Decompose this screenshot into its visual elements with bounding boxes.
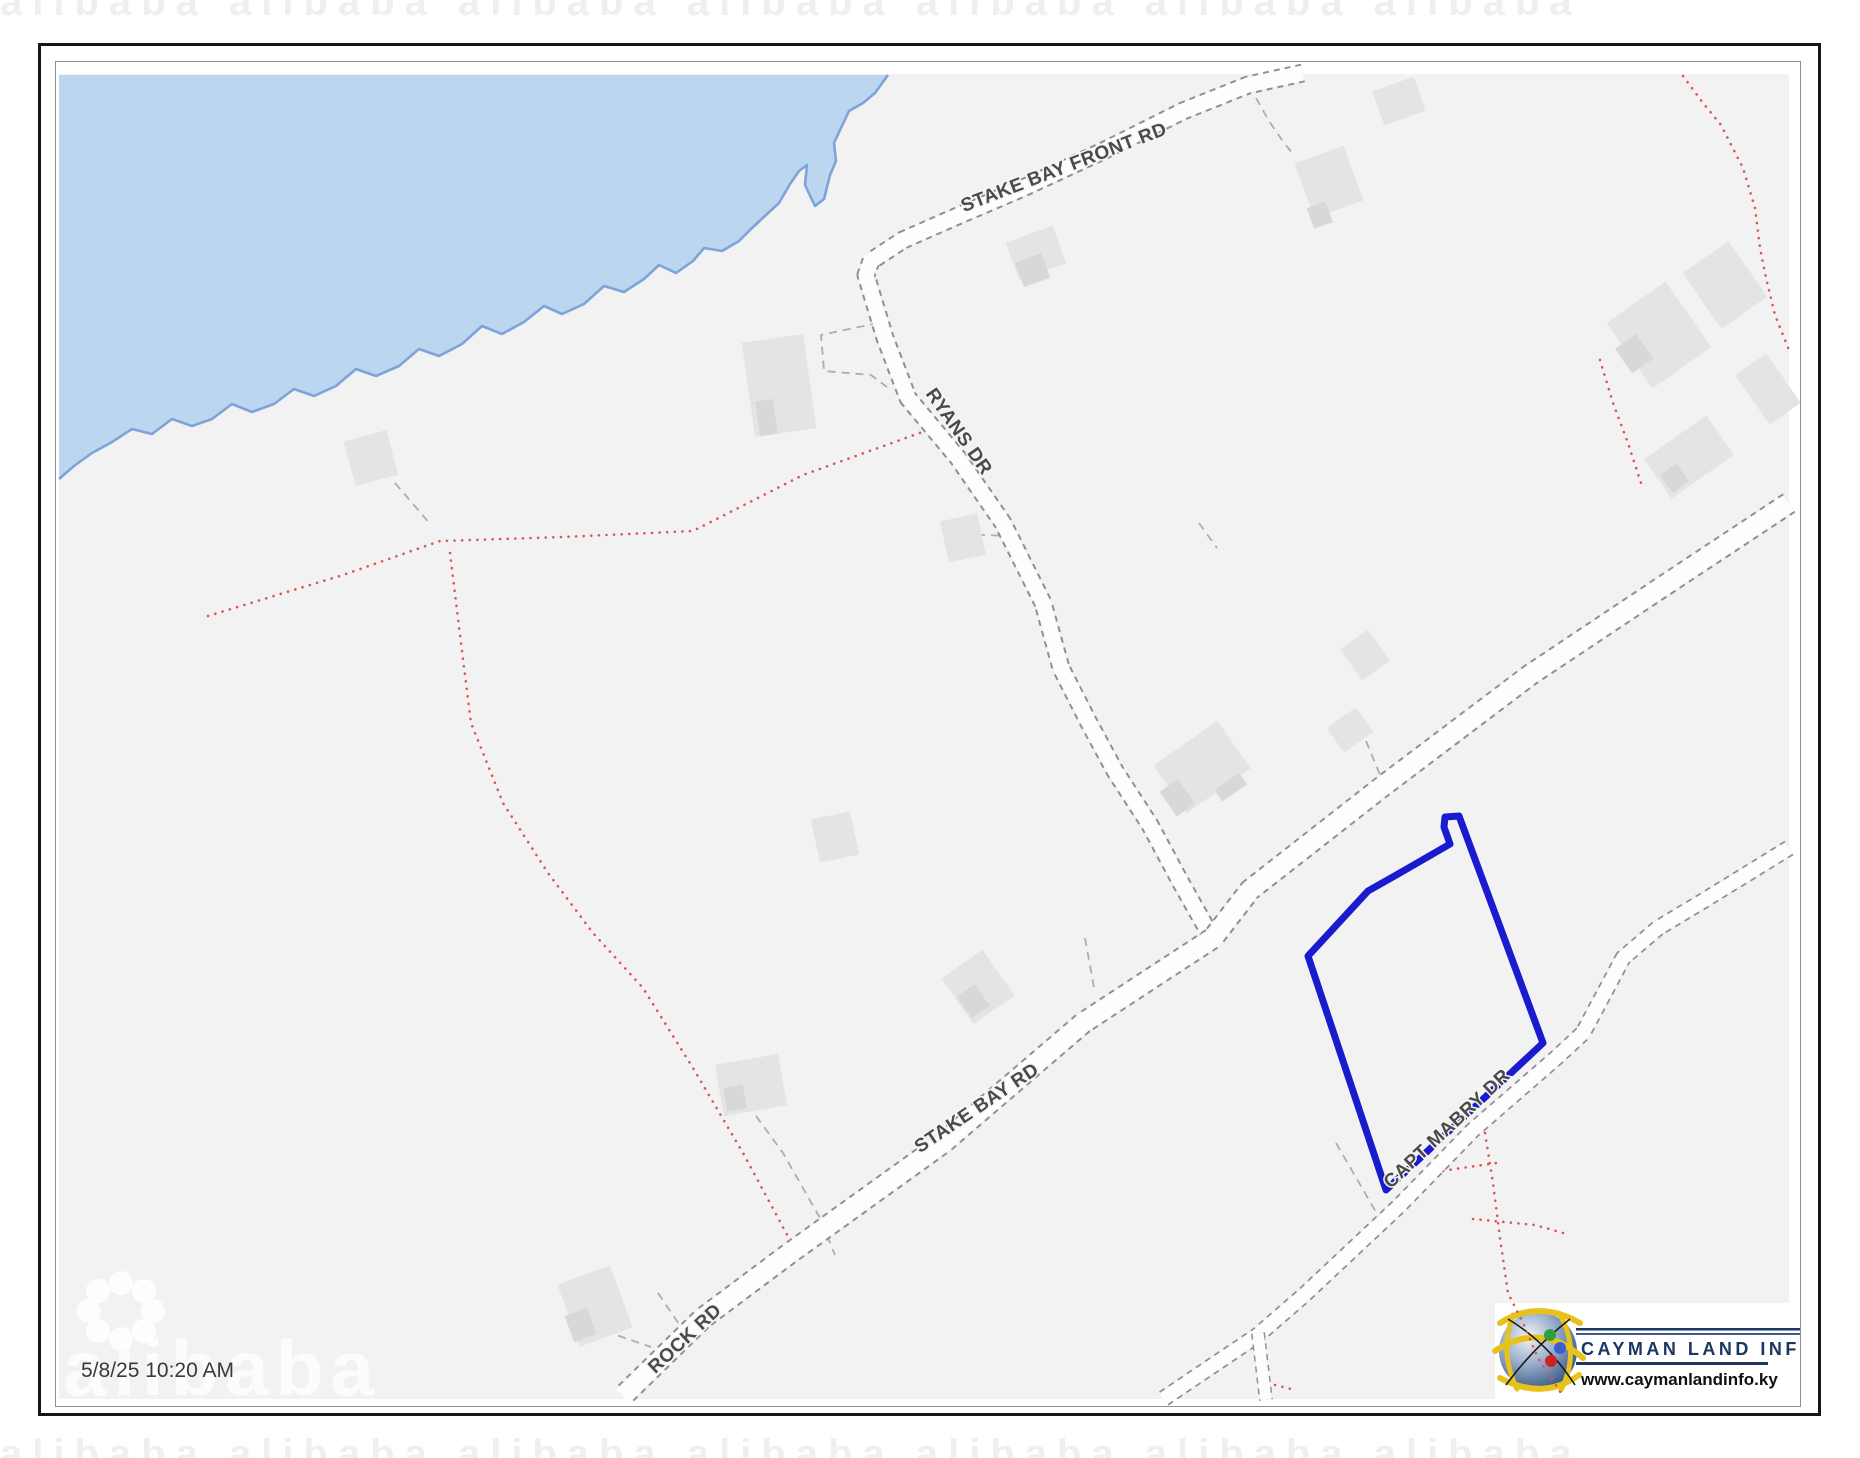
map-frame: STAKE BAY FRONT RD RYANS DR STAKE BAY RD… <box>38 43 1821 1416</box>
watermark-strip-top: alibaba alibaba alibaba alibaba alibaba … <box>0 0 1860 24</box>
logo-rule-top2 <box>1576 1333 1800 1335</box>
parcel-map: STAKE BAY FRONT RD RYANS DR STAKE BAY RD… <box>56 62 1800 1406</box>
watermark-row-text: alibaba alibaba alibaba alibaba alibaba … <box>0 1432 1582 1458</box>
logo-title: CAYMAN LAND INFO <box>1581 1339 1800 1359</box>
watermark-row-text: alibaba alibaba alibaba alibaba alibaba … <box>0 0 1860 24</box>
logo-website[interactable]: www.caymanlandinfo.ky <box>1580 1370 1778 1389</box>
building <box>715 1054 787 1116</box>
timestamp: 5/8/25 10:20 AM <box>81 1359 234 1382</box>
map-area: STAKE BAY FRONT RD RYANS DR STAKE BAY RD… <box>55 61 1801 1407</box>
logo-rule-bottom <box>1576 1362 1768 1365</box>
logo-rule-top <box>1576 1328 1800 1331</box>
building <box>742 334 817 437</box>
watermark-strip-bottom: alibaba alibaba alibaba alibaba alibaba … <box>0 1432 1860 1458</box>
